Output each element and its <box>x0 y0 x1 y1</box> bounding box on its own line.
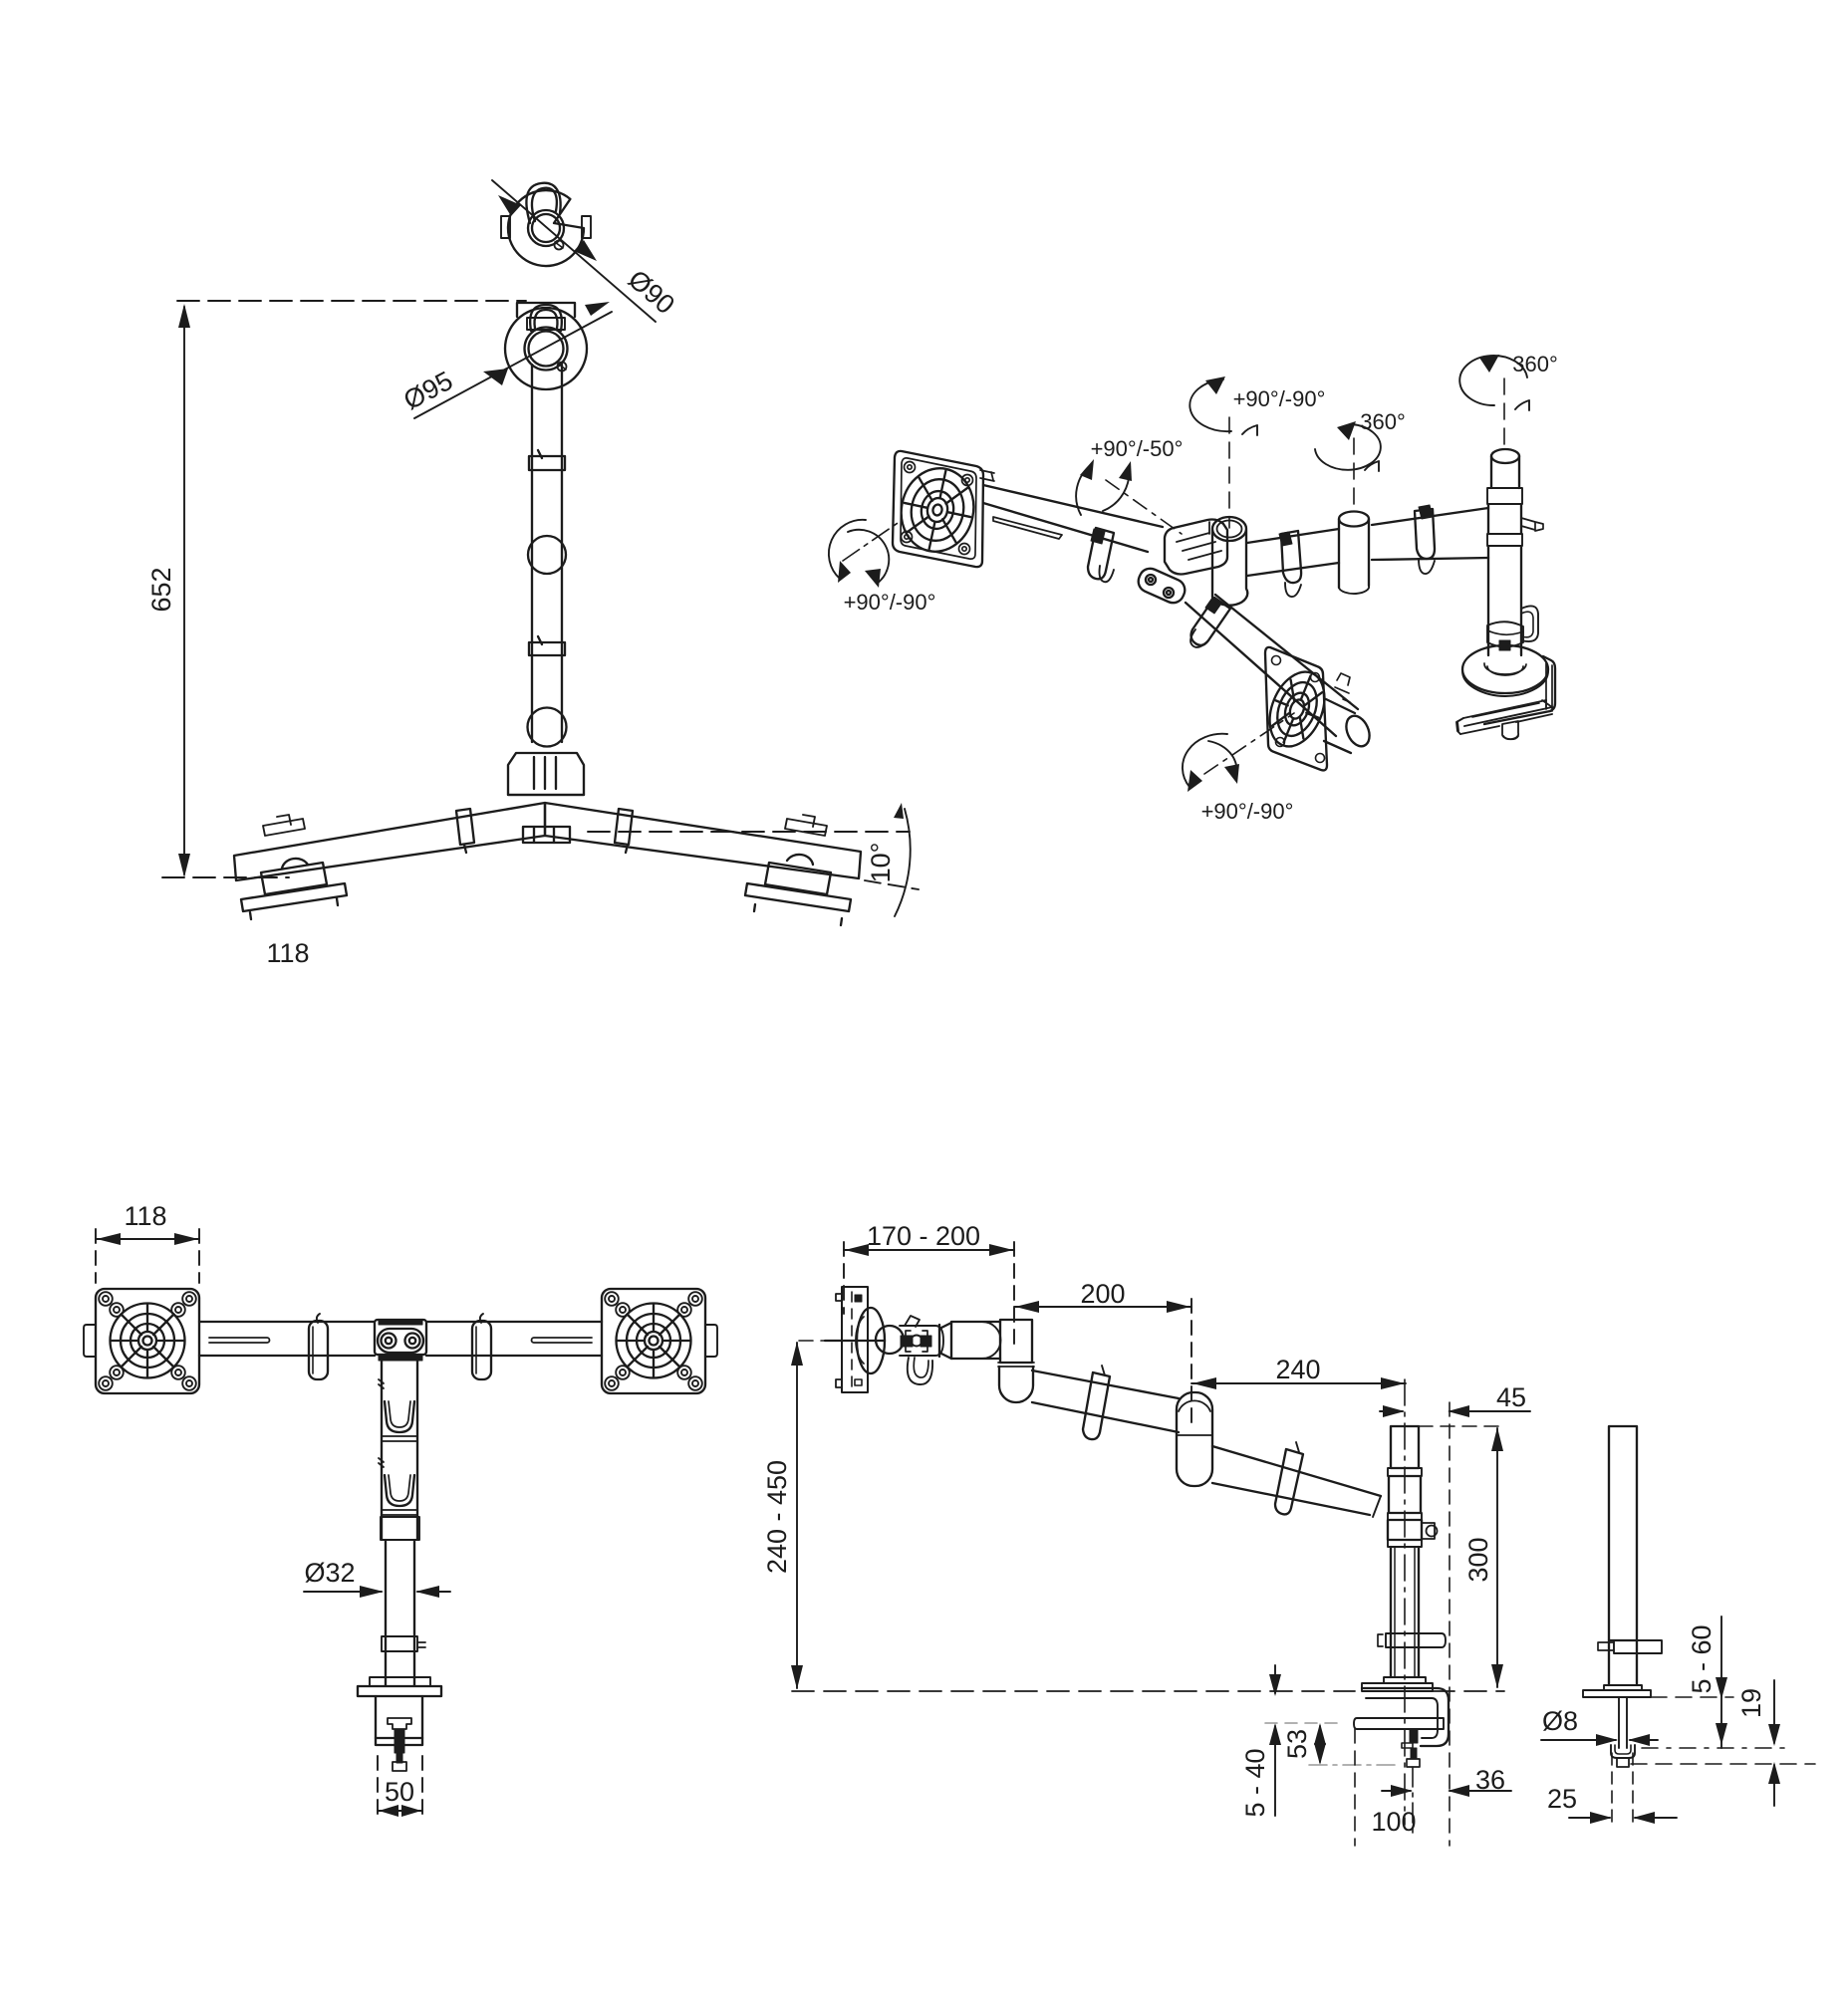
svg-text:36: 36 <box>1475 1765 1505 1795</box>
svg-text:Ø90: Ø90 <box>623 264 680 320</box>
svg-text:+90°/-90°: +90°/-90° <box>1201 799 1294 824</box>
svg-text:100: 100 <box>1371 1807 1416 1837</box>
svg-text:5 - 60: 5 - 60 <box>1687 1624 1716 1693</box>
svg-text:5 - 40: 5 - 40 <box>1240 1748 1270 1817</box>
svg-text:300: 300 <box>1463 1537 1493 1582</box>
svg-text:360°: 360° <box>1512 352 1558 376</box>
svg-text:Ø8: Ø8 <box>1542 1706 1578 1736</box>
svg-text:Ø32: Ø32 <box>304 1558 355 1588</box>
svg-text:+90°/-50°: +90°/-50° <box>1091 436 1184 461</box>
svg-text:50: 50 <box>385 1777 414 1807</box>
svg-text:170 - 200: 170 - 200 <box>867 1221 980 1251</box>
svg-text:+90°/-90°: +90°/-90° <box>1233 386 1326 411</box>
svg-text:240: 240 <box>1275 1355 1320 1384</box>
svg-text:+90°/-90°: +90°/-90° <box>844 590 936 615</box>
svg-text:53: 53 <box>1282 1729 1312 1759</box>
svg-text:118: 118 <box>266 938 309 968</box>
svg-text:25: 25 <box>1547 1784 1577 1814</box>
svg-text:19: 19 <box>1736 1688 1766 1718</box>
svg-text:118: 118 <box>124 1201 166 1231</box>
svg-text:360°: 360° <box>1360 409 1406 434</box>
svg-text:10°: 10° <box>866 843 896 883</box>
svg-text:652: 652 <box>146 567 176 612</box>
svg-text:45: 45 <box>1496 1382 1526 1412</box>
svg-text:200: 200 <box>1080 1279 1125 1309</box>
svg-text:Ø95: Ø95 <box>398 366 457 415</box>
svg-text:240 - 450: 240 - 450 <box>762 1460 792 1574</box>
